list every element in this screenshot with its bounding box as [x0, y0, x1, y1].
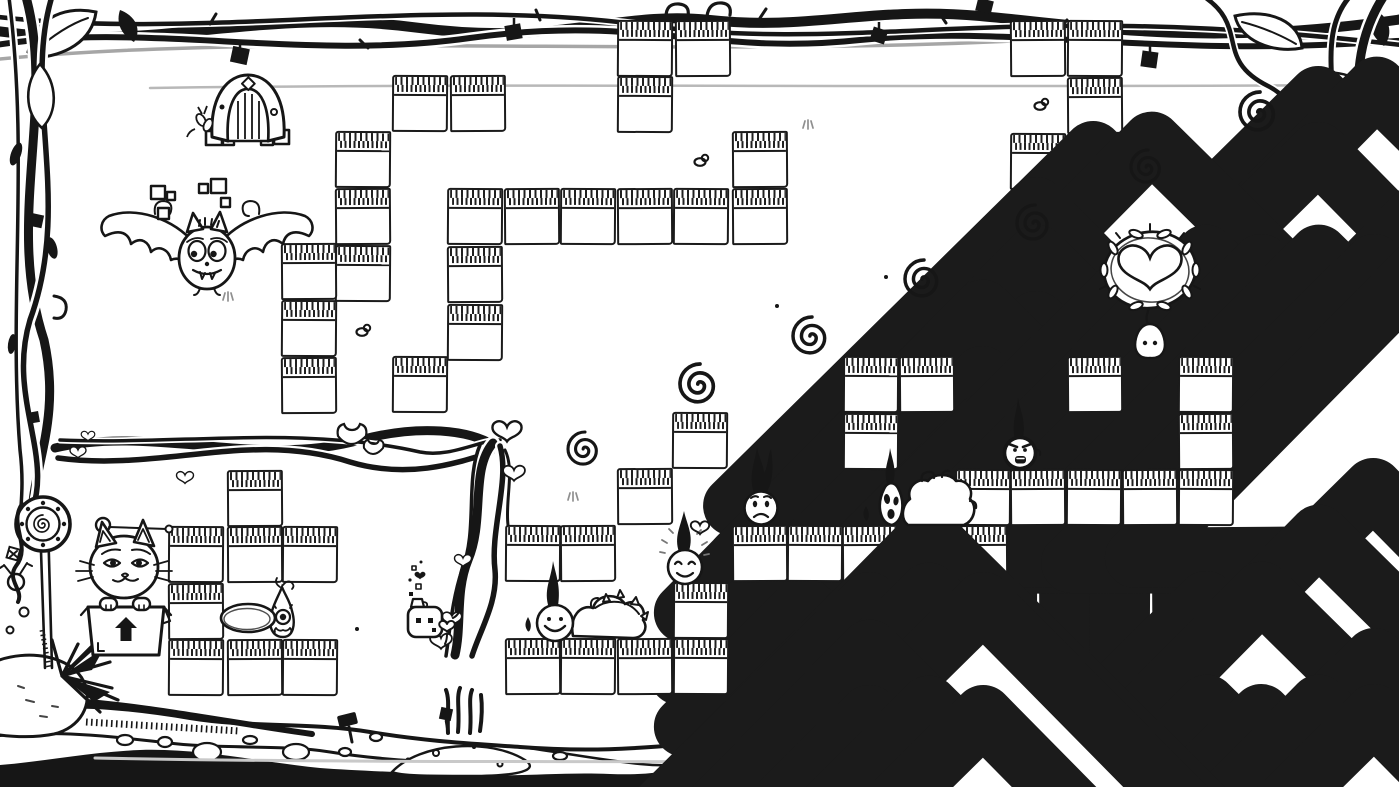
- arrow-block[interactable]: [447, 188, 503, 245]
- arrow-block[interactable]: [282, 639, 338, 696]
- arrow-block[interactable]: [281, 357, 337, 414]
- arrow-block[interactable]: [899, 356, 955, 413]
- arrow-block[interactable]: [392, 356, 448, 413]
- arrow-block[interactable]: [673, 188, 729, 245]
- arrow-block[interactable]: [450, 75, 506, 132]
- arrow-block[interactable]: [672, 412, 728, 469]
- arrow-block[interactable]: [335, 188, 391, 245]
- arrow-block[interactable]: [504, 188, 560, 245]
- arrow-block[interactable]: [1067, 20, 1123, 77]
- arrow-block[interactable]: [335, 131, 391, 188]
- arrow-block[interactable]: [617, 188, 673, 245]
- arrow-block[interactable]: [732, 131, 788, 188]
- arrow-block[interactable]: [168, 526, 224, 583]
- arrow-block[interactable]: [1178, 356, 1234, 413]
- arrow-block[interactable]: [227, 526, 283, 583]
- arrow-block[interactable]: [617, 20, 673, 77]
- arrow-block[interactable]: [227, 639, 283, 696]
- arrow-block[interactable]: [282, 526, 338, 583]
- arrow-block[interactable]: [281, 300, 337, 357]
- arrow-blocks-layer: [0, 0, 1399, 787]
- arrow-block[interactable]: [560, 188, 616, 245]
- arrow-block[interactable]: [675, 20, 731, 77]
- up-arrow-icon: [279, 641, 1399, 787]
- game-viewport: [0, 0, 1399, 787]
- arrow-block[interactable]: [227, 470, 283, 527]
- arrow-block[interactable]: [1067, 356, 1123, 413]
- arrow-block[interactable]: [281, 243, 337, 300]
- arrow-block[interactable]: [392, 75, 448, 132]
- arrow-block[interactable]: [843, 356, 899, 413]
- arrow-block[interactable]: [732, 188, 788, 245]
- arrow-block[interactable]: [1010, 20, 1066, 77]
- arrow-block[interactable]: [168, 639, 224, 696]
- arrow-block[interactable]: [168, 583, 224, 640]
